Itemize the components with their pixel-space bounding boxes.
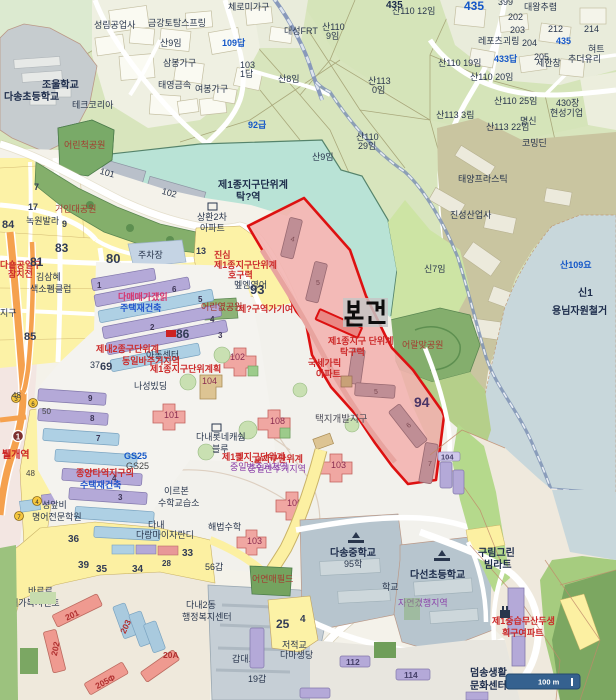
- svg-text:29임: 29임: [358, 140, 376, 151]
- svg-text:명신: 명신: [520, 116, 537, 126]
- svg-text:레포츠괴링: 레포츠괴링: [478, 35, 519, 46]
- svg-text:102: 102: [230, 352, 245, 362]
- svg-text:주차장: 주차장: [138, 249, 163, 260]
- svg-text:제1쪭지구단위계: 제1쪭지구단위계: [222, 451, 285, 462]
- svg-text:5: 5: [316, 280, 320, 287]
- svg-text:이르본: 이르본: [164, 486, 189, 496]
- svg-text:현성기업: 현성기업: [550, 108, 583, 118]
- svg-text:제?구역가기여: 제?구역가기여: [238, 303, 293, 314]
- svg-text:37: 37: [90, 360, 100, 370]
- svg-text:제내2종구단위계: 제내2종구단위계: [96, 343, 159, 354]
- svg-text:20A: 20A: [163, 650, 179, 660]
- svg-text:행정복지센터: 행정복지센터: [182, 611, 232, 622]
- svg-text:다송중학교: 다송중학교: [330, 546, 376, 559]
- svg-text:신7임: 신7임: [424, 263, 446, 274]
- svg-text:학교: 학교: [382, 582, 399, 592]
- svg-text:112: 112: [346, 657, 360, 667]
- svg-text:지구: 지구: [0, 308, 17, 318]
- svg-text:36: 36: [68, 534, 80, 545]
- svg-text:테크코리아: 테크코리아: [72, 100, 114, 110]
- svg-text:산110 25임: 산110 25임: [494, 95, 537, 106]
- svg-text:1: 1: [97, 281, 102, 290]
- svg-text:85: 85: [24, 331, 36, 343]
- svg-text:다송초등학교: 다송초등학교: [4, 90, 59, 103]
- svg-text:택지개발지구: 택지개발지구: [315, 414, 368, 425]
- svg-text:103: 103: [331, 460, 346, 470]
- svg-text:204: 204: [522, 38, 537, 48]
- svg-text:5: 5: [374, 389, 378, 396]
- svg-text:획구여파트: 획구여파트: [502, 627, 544, 638]
- svg-text:제1종지구단위계: 제1종지구단위계: [218, 178, 288, 191]
- svg-text:2: 2: [150, 323, 155, 332]
- svg-text:430장: 430장: [556, 98, 579, 108]
- svg-text:108: 108: [270, 416, 285, 426]
- svg-text:조울학교: 조울학교: [42, 78, 79, 91]
- svg-text:아파트: 아파트: [200, 223, 225, 233]
- svg-text:용님자원철거: 용님자원철거: [552, 304, 607, 317]
- svg-text:92급: 92급: [248, 120, 267, 130]
- svg-text:4: 4: [300, 614, 306, 625]
- svg-text:저적교: 저적교: [282, 639, 307, 650]
- svg-text:참치전: 참치전: [8, 268, 33, 279]
- svg-text:태양프라스틱: 태양프라스틱: [458, 173, 508, 184]
- svg-text:다마생당: 다마생당: [280, 650, 313, 660]
- svg-text:제1종지구 단위계: 제1종지구 단위계: [328, 335, 393, 346]
- svg-text:28: 28: [162, 559, 171, 568]
- svg-text:김삼혜: 김삼혜: [36, 271, 61, 282]
- svg-text:상환2차: 상환2차: [197, 211, 228, 222]
- svg-text:202: 202: [508, 12, 523, 22]
- svg-text:39: 39: [78, 560, 90, 571]
- svg-text:대왕추렴: 대왕추렴: [524, 1, 557, 12]
- svg-text:9: 9: [88, 394, 93, 403]
- svg-text:435: 435: [386, 0, 403, 11]
- svg-text:101: 101: [164, 410, 179, 420]
- svg-text:아파트: 아파트: [316, 368, 342, 379]
- svg-text:95학: 95학: [344, 559, 362, 569]
- svg-text:산9임: 산9임: [160, 37, 182, 48]
- svg-text:8: 8: [90, 414, 95, 423]
- svg-text:색소폠클럽: 색소폠클럽: [30, 284, 71, 294]
- svg-text:GS25: GS25: [124, 451, 147, 461]
- svg-text:6: 6: [172, 285, 177, 294]
- svg-text:214: 214: [584, 24, 599, 34]
- svg-text:80: 80: [106, 251, 120, 266]
- svg-text:탁구력: 탁구력: [340, 346, 365, 357]
- svg-text:주택재건축: 주택재건축: [120, 302, 161, 313]
- svg-text:거인대공원: 거인대공원: [55, 204, 96, 214]
- svg-text:구림그린: 구림그린: [478, 546, 515, 559]
- svg-text:17: 17: [28, 202, 38, 212]
- svg-text:산110 20임: 산110 20임: [470, 71, 513, 82]
- svg-text:100 m: 100 m: [538, 678, 560, 687]
- svg-text:4: 4: [210, 315, 215, 324]
- svg-text:다매매가걨읽: 다매매가걨읽: [118, 291, 168, 302]
- svg-text:수학교습소: 수학교습소: [158, 498, 199, 508]
- svg-text:114: 114: [404, 670, 418, 680]
- svg-text:어린척공원: 어린척공원: [64, 140, 105, 150]
- svg-text:205: 205: [534, 52, 549, 62]
- svg-text:탁?역: 탁?역: [236, 190, 261, 203]
- svg-text:체로미가구: 체로미가구: [228, 2, 269, 12]
- svg-text:9임: 9임: [326, 30, 339, 41]
- svg-text:다내2동: 다내2동: [186, 600, 216, 610]
- svg-text:433답: 433답: [494, 53, 518, 64]
- svg-text:7: 7: [34, 182, 39, 192]
- svg-text:33: 33: [182, 548, 194, 559]
- svg-text:종양타역지구의: 종양타역지구의: [76, 467, 134, 478]
- svg-text:1: 1: [16, 433, 21, 442]
- svg-text:1답: 1답: [240, 68, 253, 79]
- svg-text:다내: 다내: [148, 520, 165, 530]
- svg-text:해법수학: 해법수학: [208, 522, 241, 532]
- svg-text:69: 69: [100, 361, 112, 373]
- svg-text:34: 34: [132, 564, 144, 575]
- svg-text:56갑: 56갑: [205, 561, 223, 572]
- svg-text:212: 212: [548, 24, 563, 34]
- svg-text:대성FRT: 대성FRT: [284, 26, 318, 36]
- svg-text:104: 104: [441, 453, 454, 462]
- svg-text:0임: 0임: [372, 84, 385, 95]
- svg-text:금강토탐스프링: 금강토탐스프링: [148, 17, 206, 28]
- svg-text:83: 83: [55, 241, 69, 255]
- svg-text:104: 104: [202, 376, 217, 386]
- svg-text:빔라트: 빔라트: [484, 558, 512, 571]
- svg-text:다랑마이자란디: 다랑마이자란디: [136, 529, 194, 540]
- svg-text:산8임: 산8임: [278, 73, 300, 84]
- svg-text:어린엾공원: 어린엾공원: [201, 302, 242, 312]
- svg-text:109답: 109답: [222, 37, 246, 48]
- svg-text:399: 399: [498, 0, 513, 7]
- svg-text:3: 3: [118, 493, 123, 502]
- svg-text:435: 435: [464, 0, 484, 13]
- svg-text:동일바주거지역: 동일바주거지역: [122, 355, 180, 366]
- svg-text:7: 7: [96, 434, 101, 443]
- svg-text:추더유리: 추더유리: [568, 54, 601, 64]
- svg-text:국세가릭: 국세가릭: [308, 357, 341, 368]
- svg-text:산109요: 산109요: [560, 259, 592, 270]
- svg-text:84: 84: [2, 219, 15, 231]
- svg-text:7: 7: [428, 461, 432, 468]
- svg-text:삼봉가구: 삼봉가구: [163, 58, 196, 68]
- svg-text:성앞비: 성앞비: [42, 499, 67, 510]
- svg-text:수택재건축: 수택재건축: [80, 479, 121, 490]
- svg-text:신1: 신1: [578, 286, 593, 299]
- svg-text:코밍딘: 코밍딘: [522, 138, 547, 148]
- svg-text:9: 9: [62, 219, 67, 229]
- svg-text:뷑개역: 뷑개역: [2, 448, 30, 461]
- svg-text:진성산업사: 진성산업사: [450, 210, 492, 220]
- svg-text:명어전문학원: 명어전문학원: [32, 512, 82, 522]
- svg-text:혀트: 혀트: [588, 44, 605, 54]
- svg-text:48: 48: [26, 469, 35, 478]
- svg-text:94: 94: [414, 394, 430, 410]
- svg-text:덤송생활: 덤송생활: [470, 666, 508, 679]
- svg-text:435: 435: [556, 36, 571, 46]
- svg-text:81: 81: [30, 255, 44, 269]
- svg-text:나성빘딩: 나성빘딩: [134, 381, 167, 391]
- svg-text:19갑: 19갑: [248, 673, 266, 684]
- svg-text:진심: 진심: [214, 249, 231, 260]
- svg-text:산9임: 산9임: [312, 151, 334, 162]
- svg-text:3: 3: [218, 331, 223, 340]
- svg-text:다내롯네캐쉄: 다내롯네캐쉄: [196, 432, 246, 442]
- svg-text:35: 35: [96, 564, 108, 575]
- svg-text:103: 103: [247, 536, 262, 546]
- svg-text:호구력: 호구력: [228, 269, 253, 280]
- svg-text:태영금속: 태영금속: [158, 80, 191, 90]
- svg-text:13: 13: [196, 246, 206, 256]
- svg-text:중일반주거지역: 중일반주거지역: [230, 462, 288, 472]
- svg-text:산113 3림: 산113 3림: [436, 109, 474, 120]
- svg-text:93: 93: [250, 282, 264, 297]
- svg-text:48: 48: [12, 391, 21, 400]
- svg-text:제1종지구단위계: 제1종지구단위계: [214, 259, 277, 270]
- svg-text:여봉가구: 여봉가구: [195, 83, 228, 94]
- svg-text:성림공업사: 성림공업사: [94, 19, 136, 30]
- svg-text:86: 86: [176, 327, 190, 341]
- svg-text:녹원발라: 녹원발라: [26, 216, 60, 226]
- svg-text:문화센터: 문화센터: [470, 679, 507, 692]
- svg-text:50: 50: [42, 407, 51, 416]
- svg-text:203: 203: [510, 25, 525, 35]
- svg-text:어랄맞공원: 어랄맞공원: [402, 339, 443, 350]
- svg-text:다선초등학교: 다선초등학교: [410, 568, 465, 581]
- svg-text:25: 25: [276, 617, 290, 631]
- svg-text:산110 19임: 산110 19임: [438, 57, 481, 68]
- svg-text:어연매필드: 어연매필드: [252, 573, 293, 584]
